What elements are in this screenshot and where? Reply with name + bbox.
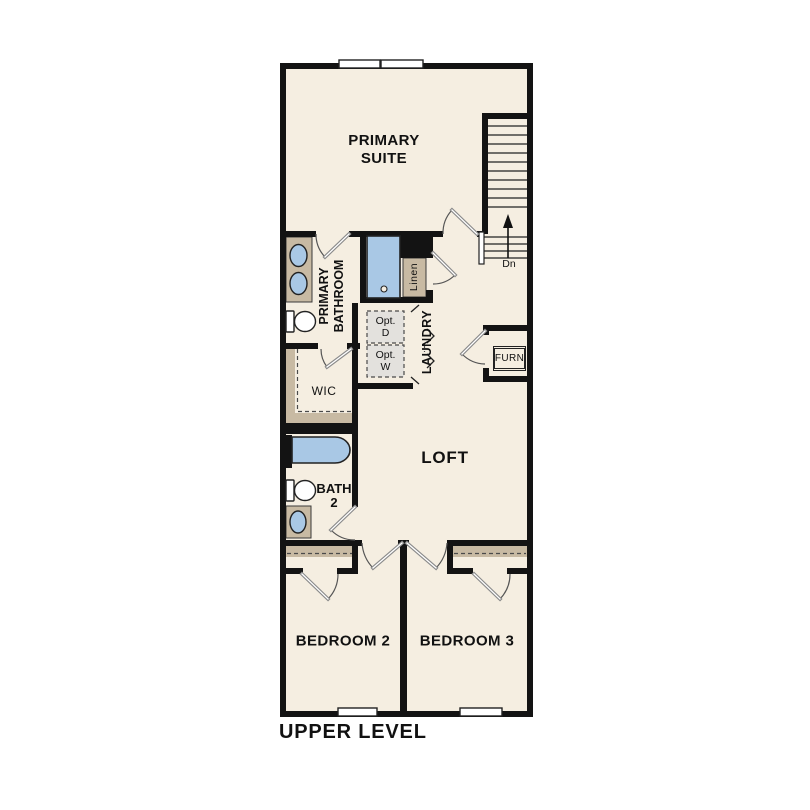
opt-washer-line2: W: [381, 361, 391, 374]
window: [339, 60, 380, 68]
bedroom3-label: BEDROOM 3: [420, 633, 514, 650]
vanity-sink: [290, 273, 307, 295]
plan-title: UPPER LEVEL: [279, 721, 427, 744]
bedroom2-closet-shelf: [286, 546, 355, 557]
stairs-down-label: Dn: [502, 258, 515, 270]
laundry-label: LAUNDRY: [420, 310, 434, 374]
wic-shelf-bottom: [286, 413, 352, 423]
furnace-unit: FURN: [493, 346, 526, 371]
window: [381, 60, 423, 68]
primary-suite-label: PRIMARY SUITE: [348, 132, 419, 168]
bath2-line1: BATH: [316, 482, 351, 496]
primary-suite-line2: SUITE: [348, 150, 419, 168]
optional-dryer-label: Opt. D: [367, 311, 404, 343]
loft-label: LOFT: [421, 448, 469, 468]
furnace-label: FURN: [494, 348, 525, 369]
vanity-sink: [290, 511, 306, 533]
toilet: [286, 311, 316, 332]
wic-shelf-left: [286, 349, 295, 423]
window: [338, 708, 377, 716]
vanity-sink: [290, 245, 307, 267]
opt-dryer-line1: Opt.: [376, 315, 396, 328]
floor-plan-svg: [0, 0, 810, 810]
window: [460, 708, 502, 716]
bedroom3-closet-shelf: [453, 546, 527, 557]
bath2-label: BATH 2: [316, 482, 351, 510]
linen-label: Linen: [408, 263, 420, 291]
optional-washer-label: Opt. W: [367, 345, 404, 377]
opt-washer-line1: Opt.: [376, 349, 396, 362]
wic-label: WIC: [312, 384, 337, 398]
toilet: [286, 480, 316, 501]
primary-bathroom-line2: BATHROOM: [332, 260, 347, 333]
bath2-line2: 2: [316, 496, 351, 510]
opt-dryer-line2: D: [382, 327, 390, 340]
stair-railing: [479, 232, 484, 264]
primary-bathroom-line1: PRIMARY: [317, 260, 332, 333]
primary-suite-line1: PRIMARY: [348, 132, 419, 150]
bathtub: [292, 437, 350, 463]
shower-drain: [381, 286, 387, 292]
primary-bathroom-label: PRIMARY BATHROOM: [317, 260, 347, 333]
bedroom2-label: BEDROOM 2: [296, 633, 390, 650]
